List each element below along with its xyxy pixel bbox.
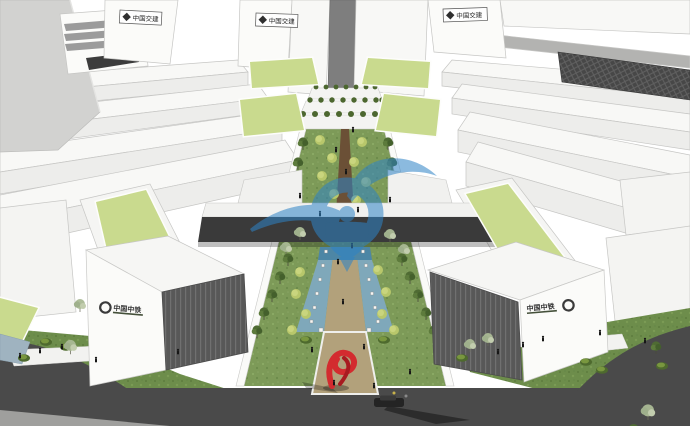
architectural-render: 中国中铁 中国中铁 中国交建 中国交建	[0, 0, 690, 426]
green-roof	[362, 58, 430, 88]
green-roof	[250, 58, 318, 88]
rooftop-sign: 中国交建	[119, 10, 162, 25]
front-left-building: 中国中铁	[86, 236, 248, 386]
green-roof	[240, 94, 304, 136]
plaza	[312, 332, 378, 394]
rooftop-sign: 中国交建	[443, 7, 487, 22]
rooftop-sign: 中国交建	[256, 13, 298, 27]
render-canvas: 中国中铁 中国中铁 中国交建 中国交建	[0, 0, 690, 426]
green-roof	[376, 94, 440, 136]
